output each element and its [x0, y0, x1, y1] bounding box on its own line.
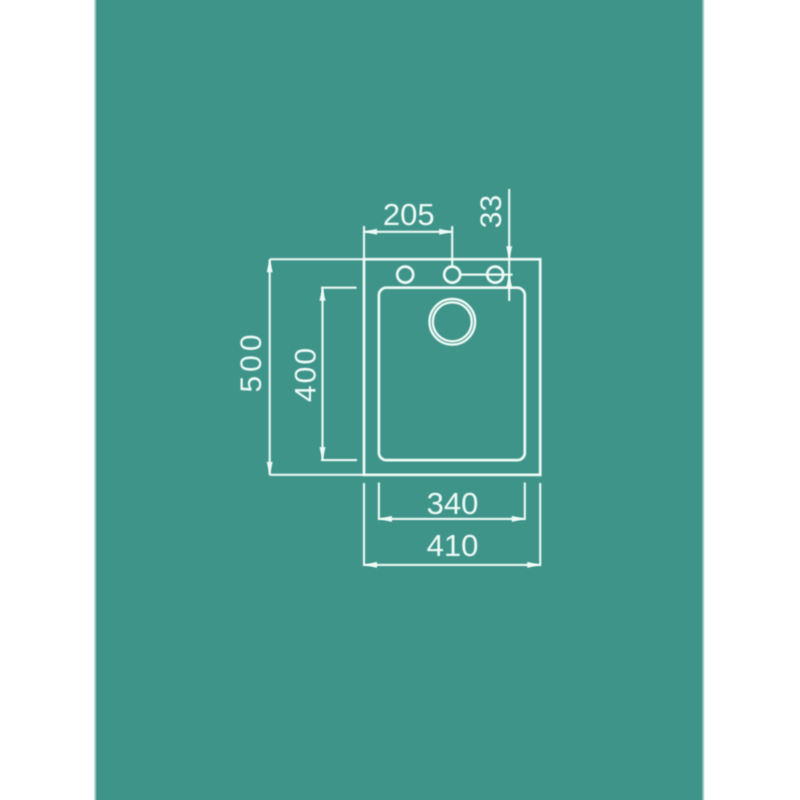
svg-text:205: 205	[383, 197, 435, 232]
svg-text:33: 33	[475, 195, 508, 228]
svg-text:340: 340	[427, 486, 479, 521]
svg-text:500: 500	[235, 330, 268, 392]
svg-text:410: 410	[427, 528, 479, 563]
svg-text:400: 400	[290, 346, 323, 402]
